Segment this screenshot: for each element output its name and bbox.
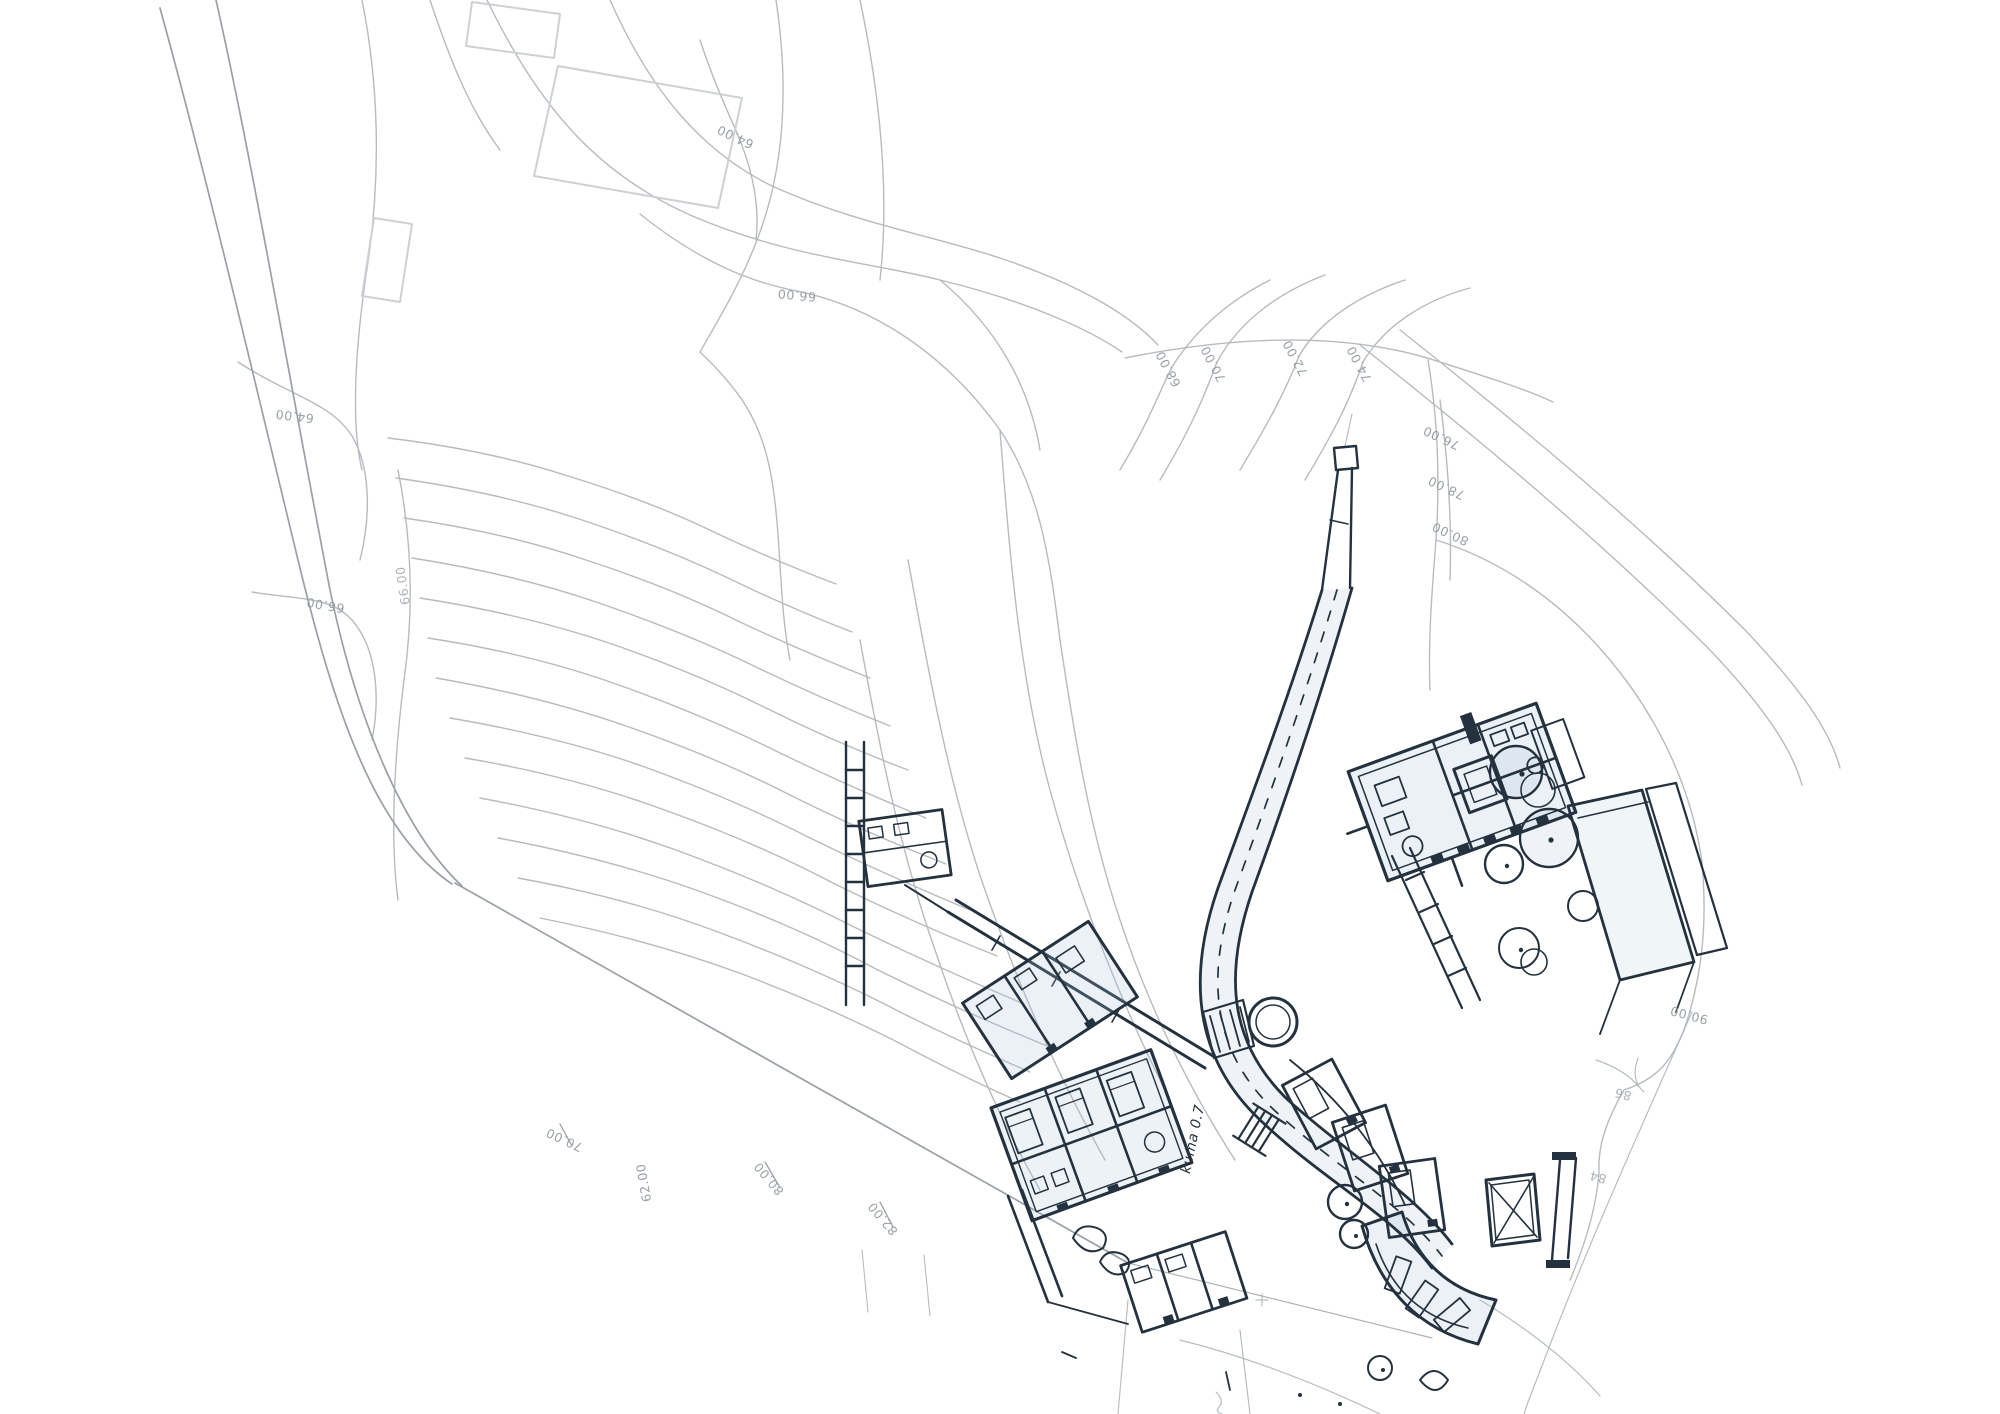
- valley-contour-lines: [860, 430, 1235, 1190]
- site-plan-canvas: 64.0064.0066.0066.0066.0068.0070.0072.00…: [0, 0, 2000, 1414]
- guesthouse-plan: [1323, 683, 1605, 916]
- central-bedroom-block: [991, 1050, 1192, 1222]
- survey-structure-outlines: [362, 2, 742, 302]
- topographic-survey: [160, 0, 1840, 1338]
- contour-elevation-label: 90.00: [1668, 1003, 1709, 1028]
- west-wing-rooms: [963, 921, 1138, 1078]
- hand-sketch: [846, 446, 1727, 1406]
- upper-contour-lines: [355, 0, 1553, 470]
- terrace-contour-lines: [388, 438, 1052, 1102]
- pool: [1486, 1174, 1540, 1246]
- contour-elevation-label: 64.00: [274, 407, 314, 427]
- contour-elevation-label: 62.00: [633, 1162, 655, 1203]
- southwest-wall: [1008, 1190, 1128, 1324]
- contour-elevation-label: 76.00: [1420, 423, 1462, 453]
- contour-elevation-label: 68.00: [1152, 348, 1183, 389]
- contour-elevation-label: 74.00: [1343, 343, 1374, 384]
- northeast-contour-lines: [1120, 275, 1470, 690]
- contour-elevation-label: 82.00: [864, 1199, 900, 1238]
- contour-elevation-label: 84: [1588, 1168, 1608, 1187]
- site-plan-page: 64.0064.0066.0066.0066.0068.0070.0072.00…: [0, 0, 2000, 1414]
- contour-elevation-label: 70.00: [543, 1125, 585, 1155]
- west-retaining-steps: [846, 742, 864, 1005]
- contour-elevation-label: 80.00: [750, 1159, 786, 1198]
- entry-drive: [1322, 446, 1358, 590]
- southwest-rooms: [1121, 1232, 1247, 1333]
- watercolor-washes: [1200, 588, 1694, 1344]
- contour-elevation-label: 78.00: [1425, 473, 1467, 503]
- contour-elevation-label: 66.00: [777, 286, 817, 304]
- contour-labels-layer: 64.0064.0066.0066.0066.0068.0070.0072.00…: [274, 122, 1709, 1238]
- property-boundary: [160, 0, 1432, 1338]
- contour-elevation-label: 72.00: [1279, 337, 1310, 378]
- pool-wall: [1546, 1152, 1576, 1268]
